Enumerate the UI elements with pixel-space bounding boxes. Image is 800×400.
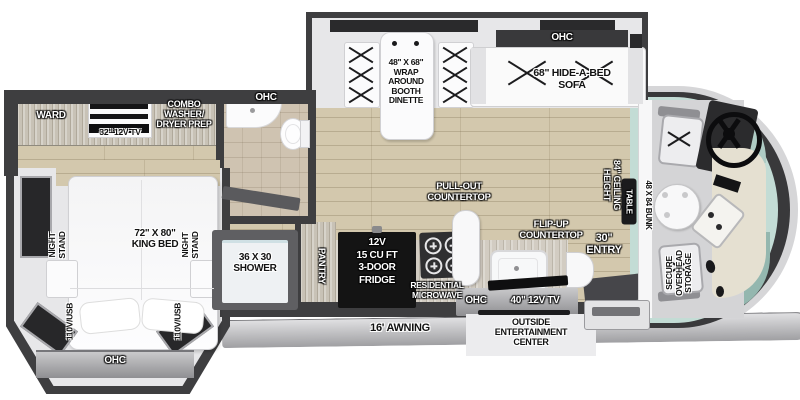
ceiling-height-label: 84" CEILING HEIGHT [596, 132, 622, 238]
floorplan-canvas: 16' AWNING OUTSIDE ENTERTAINMENT CENTER … [0, 0, 800, 400]
bench-cushion-mark [347, 86, 375, 101]
steering-hub [723, 128, 735, 140]
entry-step-pad [592, 307, 640, 316]
pullout-countertop [452, 210, 480, 286]
burner-icon [424, 237, 442, 255]
kitchen-ohc-label: OHC [460, 295, 492, 306]
outlet-right-label: 110V/USB [174, 290, 187, 354]
cabover-bunk-label: 48 X 84 BUNK [638, 146, 652, 264]
bench-cushion-mark [441, 66, 469, 81]
dinette-label: 48" X 68" WRAP AROUND BOOTH DINETTE [381, 58, 431, 106]
outside-entertainment-label: OUTSIDE ENTERTAINMENT CENTER [466, 317, 596, 347]
slide-window-left [330, 20, 478, 32]
bench-cushion-mark [347, 46, 375, 61]
sofa-label: 68" HIDE-A-BED SOFA [510, 68, 634, 92]
awning-label: 16' AWNING [340, 322, 460, 334]
tv32-label: 32" 12V TV [82, 128, 158, 138]
bed-ohc-label: OHC [36, 355, 194, 366]
tv40-label: 40" 12V TV [494, 295, 576, 306]
cab-table-dot [664, 212, 670, 218]
table-pin [414, 41, 419, 46]
cab-table-dot [662, 192, 668, 198]
refrigerator-handle [372, 226, 382, 233]
washer-dryer-stripe [90, 104, 148, 109]
toilet-tank [300, 120, 310, 148]
rear-wall [4, 90, 18, 176]
bed-blanket-line [70, 288, 214, 289]
bench-cushion-mark [441, 46, 469, 61]
ward-label: WARD [20, 110, 82, 121]
bathroom-ohc-label: OHC [238, 92, 294, 103]
flipup-countertop [566, 252, 594, 288]
table-pin [392, 41, 397, 46]
night-stand-right-label: NIGHT STAND [181, 213, 209, 277]
driver-seat-mark [666, 124, 692, 152]
cab-table-label: TABLE [622, 179, 637, 225]
bench-cushion-mark [347, 66, 375, 81]
dash-detail [716, 286, 724, 297]
console-cupholder [708, 212, 714, 218]
outside-entertainment-trimbar [478, 310, 570, 315]
outlet-left-label: 110V/USB [66, 290, 79, 354]
bench-cushion-mark [441, 86, 469, 101]
washer-dryer-stripe [90, 114, 148, 119]
cab-table-dot [682, 192, 688, 198]
sofa-ohc-label: OHC [496, 32, 628, 43]
vanity-faucet [250, 108, 255, 113]
washer-dryer-label: COMBO WASHER/ DRYER PREP [148, 99, 220, 129]
overhead-storage-label: SECURE OVERHEAD STORAGE [665, 232, 699, 314]
night-stand-left-label: NIGHT STAND [48, 213, 76, 277]
sink-faucet [514, 266, 519, 271]
shower-label: 36 X 30 SHOWER [220, 252, 290, 274]
pullout-label: PULL-OUT COUNTERTOP [404, 182, 514, 203]
sofa-armrest-left [471, 48, 486, 104]
refrigerator-label: 12V 15 CU FT 3-DOOR FRIDGE [338, 237, 416, 287]
console-cupholder [716, 224, 722, 230]
burner-icon [425, 257, 443, 275]
bed-pillow-left [78, 297, 141, 335]
toilet-seat [285, 124, 301, 144]
pantry-label: PANTRY [310, 226, 326, 306]
